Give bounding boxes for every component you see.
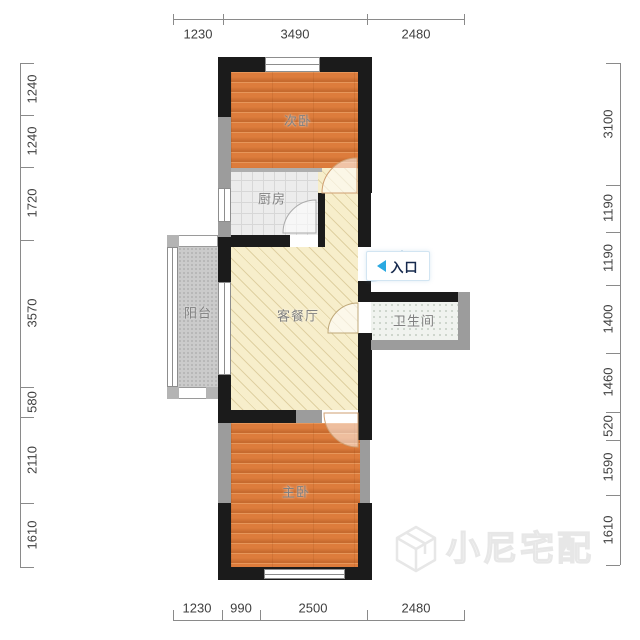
dim-label: 1190 xyxy=(601,194,616,222)
dim-label: 3100 xyxy=(601,110,616,139)
dim-label: 1400 xyxy=(601,305,616,334)
wall-left xyxy=(218,222,231,237)
dim-tick xyxy=(606,412,620,413)
balcony-frame-corner xyxy=(167,235,179,247)
dim-tick xyxy=(223,14,224,25)
wall-bathroom-bottom xyxy=(371,340,470,350)
bathroom-label: 卫生间 xyxy=(393,311,435,330)
entrance-arrow-icon xyxy=(377,260,386,272)
living-room-label: 客餐厅 xyxy=(277,306,319,325)
dim-label: 3570 xyxy=(25,299,40,328)
dim-tick xyxy=(606,565,620,566)
dim-label: 1590 xyxy=(601,453,616,482)
dim-tick xyxy=(260,610,261,621)
dim-tick xyxy=(173,14,174,25)
balcony-label: 阳台 xyxy=(184,303,212,322)
wall-left xyxy=(218,72,231,117)
dim-label: 2480 xyxy=(402,27,431,42)
dim-tick xyxy=(464,610,465,621)
dim-tick xyxy=(606,440,620,441)
wall-right xyxy=(358,410,372,440)
dim-tick xyxy=(20,417,34,418)
bedroom1-label: 主卧 xyxy=(282,482,310,501)
dim-tick xyxy=(606,353,620,354)
dim-tick xyxy=(20,387,34,388)
window-bedroom2 xyxy=(265,57,320,72)
dim-tick xyxy=(367,610,368,621)
wall-left xyxy=(218,117,231,188)
entrance-label: 入口 xyxy=(390,257,418,276)
watermark-text: 小尼宅配 xyxy=(446,524,594,574)
wall-right xyxy=(358,333,372,410)
wall-kitchen-bottom xyxy=(231,235,290,247)
watermark-cube-icon xyxy=(392,524,440,574)
dim-label: 580 xyxy=(25,391,40,413)
dim-tick xyxy=(606,185,620,186)
dim-tick xyxy=(222,610,223,621)
dim-label: 1720 xyxy=(25,189,40,218)
dim-label: 1460 xyxy=(601,368,616,397)
wall-living-bottom xyxy=(218,410,296,423)
dim-label: 990 xyxy=(230,601,252,616)
dim-tick xyxy=(464,14,465,25)
window-kitchen xyxy=(218,188,231,222)
dim-tick xyxy=(606,63,620,64)
dim-tick xyxy=(20,167,34,168)
dim-label: 2480 xyxy=(402,601,431,616)
dim-label: 520 xyxy=(601,415,616,437)
dim-tick xyxy=(606,495,620,496)
wall-left xyxy=(218,237,231,282)
dim-line-right xyxy=(620,63,621,565)
balcony-door xyxy=(218,282,231,375)
watermark: 小尼宅配 xyxy=(392,524,594,574)
wall-right xyxy=(358,193,371,247)
floor-plan-canvas: 1230 3490 2480 1230 990 2500 2480 1240 1… xyxy=(0,0,640,640)
dim-tick xyxy=(20,240,34,241)
wall-living-bottom xyxy=(296,410,322,423)
dim-label: 2500 xyxy=(299,601,328,616)
dim-tick xyxy=(20,567,34,568)
dim-tick xyxy=(173,610,174,621)
balcony-window xyxy=(167,247,178,387)
kitchen-door-opening xyxy=(290,235,318,247)
dim-line-bottom xyxy=(173,620,465,621)
wall-kitchen-pillar xyxy=(318,193,325,247)
dim-tick xyxy=(606,285,620,286)
wall-right xyxy=(360,440,370,503)
window-bedroom1 xyxy=(264,569,345,579)
dim-label: 1190 xyxy=(601,244,616,272)
entrance-badge: 入口 xyxy=(366,251,430,281)
dim-tick xyxy=(20,115,34,116)
wall-left xyxy=(218,423,231,503)
bedroom2-label: 次卧 xyxy=(284,111,312,130)
balcony-frame-corner xyxy=(206,387,218,399)
dim-tick xyxy=(20,503,34,504)
dim-label: 2110 xyxy=(25,446,40,474)
dim-label: 1610 xyxy=(25,521,40,550)
dim-tick xyxy=(20,63,34,64)
dim-label: 3490 xyxy=(281,27,310,42)
wall-right xyxy=(358,72,372,193)
dim-label: 1240 xyxy=(25,75,40,104)
kitchen-label: 厨房 xyxy=(258,189,286,208)
dim-label: 1240 xyxy=(25,127,40,156)
dim-label: 1230 xyxy=(184,27,213,42)
dim-tick xyxy=(606,232,620,233)
balcony-frame-corner xyxy=(167,387,179,399)
dim-label: 1610 xyxy=(601,516,616,545)
dim-tick xyxy=(367,14,368,25)
dim-line-top xyxy=(173,19,465,20)
dim-line-left xyxy=(20,63,21,567)
wall-bathroom-top xyxy=(358,292,470,302)
bedroom2-kitchen-divider xyxy=(231,168,322,172)
dim-label: 1230 xyxy=(183,601,212,616)
